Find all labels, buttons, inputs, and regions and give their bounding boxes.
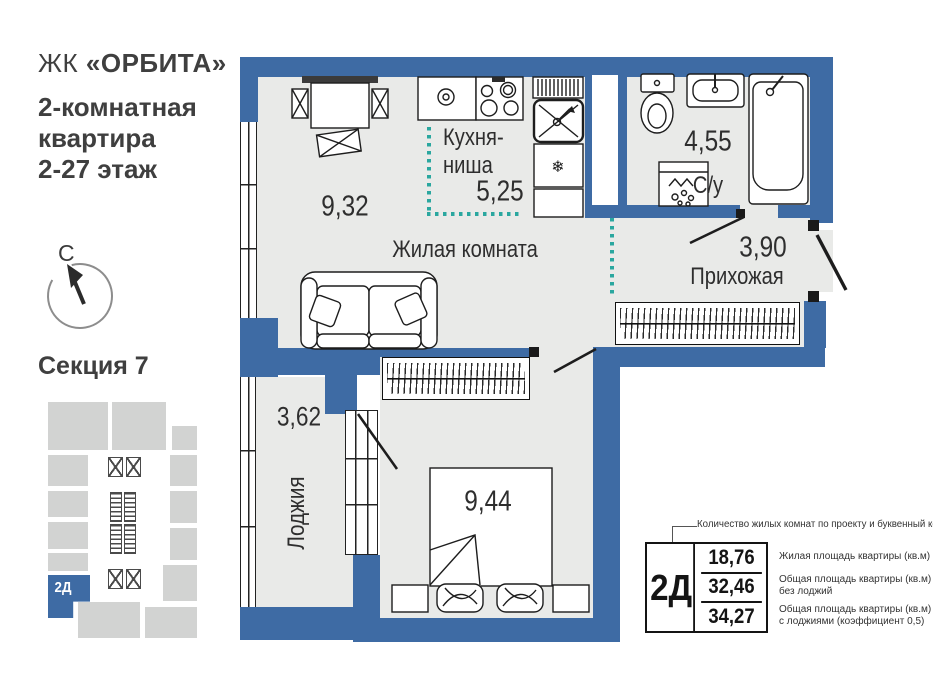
legend-desc-total: Общая площадь квартиры (кв.м) без лоджий — [779, 574, 931, 598]
living-room-label: Жилая комната — [392, 236, 538, 264]
nightstand-icon — [392, 585, 428, 612]
svg-text:❄: ❄ — [551, 157, 564, 176]
legend-value-total: 32,46 — [701, 574, 762, 604]
washbasin-icon — [687, 74, 744, 107]
sofa-icon — [301, 272, 437, 349]
bedroom-door-swing — [554, 349, 596, 372]
hallway-label: Прихожая — [690, 263, 783, 291]
living-area-value: 9,32 — [321, 191, 368, 224]
bathroom-label: С/у — [693, 172, 723, 200]
entrance-door-swing — [817, 235, 846, 290]
bedroom-area-value: 9,44 — [464, 486, 511, 519]
bathroom-area-value: 4,55 — [684, 126, 731, 159]
hallway-area-value: 3,90 — [739, 232, 786, 265]
legend-desc-living: Жилая площадь квартиры (кв.м) — [779, 551, 930, 563]
legend-value-total-loggia: 34,27 — [701, 603, 762, 631]
legend-annotation: Количество жилых комнат по проекту и бук… — [697, 519, 933, 530]
dining-table-icon — [292, 76, 388, 157]
kitchen-counter-icon — [418, 77, 476, 120]
loggia-area-value: 3,62 — [277, 402, 321, 433]
legend-table: 2Д 18,76 32,46 34,27 — [645, 542, 768, 633]
legend-desc-total-loggia: Общая площадь квартиры (кв.м) с лоджиями… — [779, 604, 931, 628]
fridge-icon: ❄ — [534, 144, 583, 187]
floorplan-page: ЖК «ОРБИТА» 2-комнатная квартира 2-27 эт… — [0, 0, 933, 700]
stove-icon — [476, 77, 523, 120]
kitchen-niche-label: Кухня- ниша — [443, 124, 504, 180]
bathroom-door-swing — [690, 217, 744, 243]
nightstand-icon — [553, 585, 589, 612]
chair-icon — [372, 89, 388, 118]
chair-icon — [292, 89, 308, 118]
kitchen-area-value: 5,25 — [476, 176, 523, 209]
loggia-label: Лоджия — [283, 476, 311, 549]
balcony-door-swing — [358, 414, 397, 469]
bathtub-icon — [749, 74, 808, 204]
kitchen-cabinet-icon — [534, 189, 583, 217]
kitchen-sink-icon — [534, 100, 583, 142]
legend-unit-code: 2Д — [649, 544, 695, 631]
toilet-icon — [641, 74, 674, 133]
dish-rack-icon — [533, 77, 583, 98]
chair-icon — [317, 129, 362, 157]
legend-value-living: 18,76 — [701, 544, 762, 574]
